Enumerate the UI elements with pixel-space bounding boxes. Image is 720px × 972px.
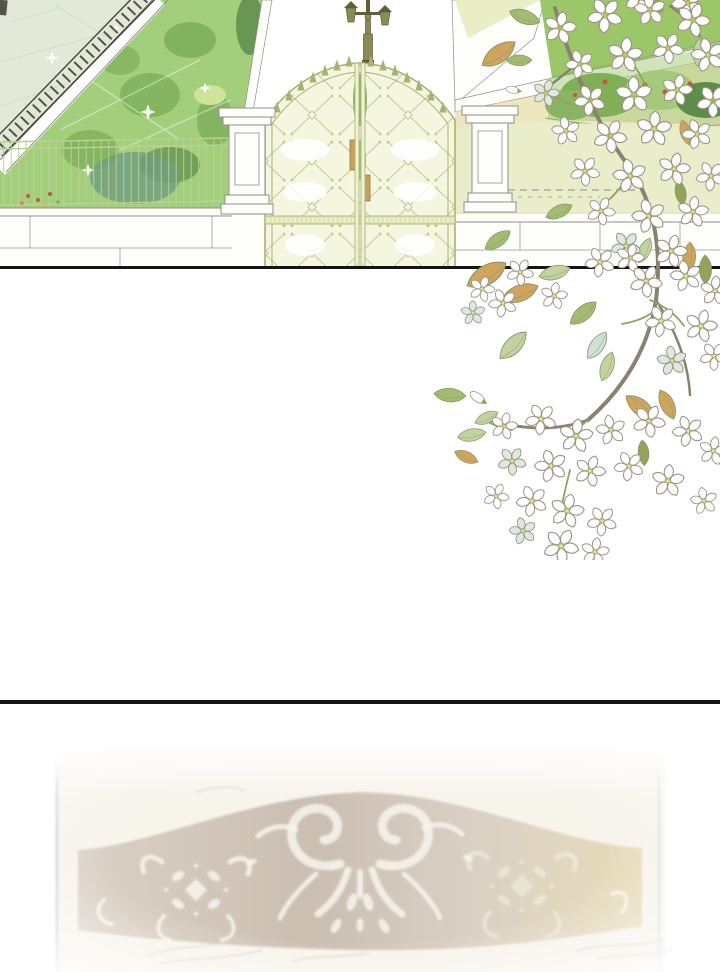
webtoon-page xyxy=(0,0,720,972)
garden-scene-art xyxy=(0,0,720,266)
plaque-art xyxy=(0,704,720,972)
panel-plaque xyxy=(0,700,720,972)
ornate-double-gate xyxy=(265,57,455,266)
blossom-cluster-low xyxy=(478,396,720,560)
wire-fence xyxy=(0,138,230,207)
panel-garden-scene xyxy=(0,0,720,269)
